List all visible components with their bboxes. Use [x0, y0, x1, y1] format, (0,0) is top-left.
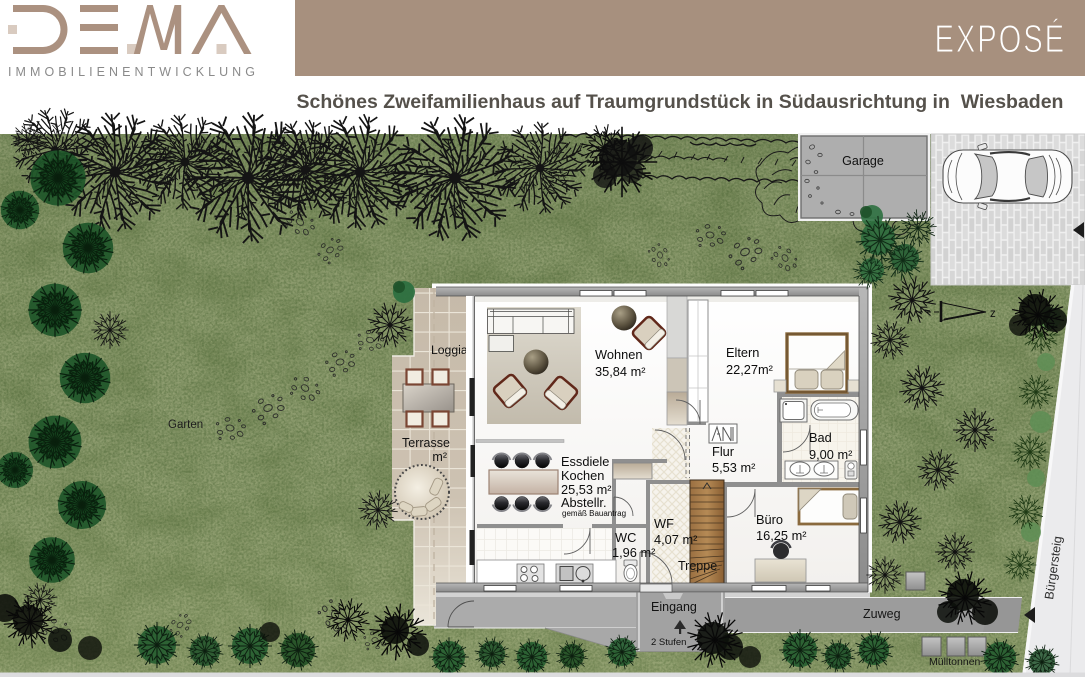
svg-text:gemäß Bauantrag: gemäß Bauantrag — [562, 509, 626, 518]
svg-text:Mülltonnen: Mülltonnen — [929, 656, 981, 668]
svg-text:Essdiele: Essdiele — [561, 454, 609, 469]
svg-text:Flur: Flur — [712, 444, 735, 459]
svg-text:Wohnen: Wohnen — [595, 347, 642, 362]
svg-text:Eingang: Eingang — [651, 600, 697, 614]
svg-text:Eltern: Eltern — [726, 345, 759, 360]
svg-text:1,96 m²: 1,96 m² — [612, 545, 656, 560]
svg-text:Garage: Garage — [842, 154, 884, 168]
svg-text:Kochen: Kochen — [561, 468, 604, 483]
svg-text:9,00 m²: 9,00 m² — [809, 447, 853, 462]
svg-text:Loggia.: Loggia. — [431, 343, 471, 357]
svg-text:WF: WF — [654, 516, 674, 531]
svg-text:EXPOSÉ: EXPOSÉ — [934, 17, 1066, 61]
svg-text:Büro: Büro — [756, 512, 783, 527]
svg-text:m²: m² — [432, 450, 447, 464]
svg-text:IMMOBILIENENTWICKLUNG: IMMOBILIENENTWICKLUNG — [8, 65, 259, 79]
svg-text:WC: WC — [615, 530, 636, 545]
svg-text:2 Stufen: 2 Stufen — [651, 637, 686, 648]
svg-text:35,84 m²: 35,84 m² — [595, 364, 646, 379]
svg-text:16,25 m²: 16,25 m² — [756, 528, 807, 543]
svg-text:22,27m²: 22,27m² — [726, 362, 774, 377]
svg-text:Bad: Bad — [809, 430, 832, 445]
svg-text:Garten: Garten — [168, 419, 203, 431]
svg-text:z: z — [990, 308, 996, 320]
svg-text:5,53 m²: 5,53 m² — [712, 460, 756, 475]
svg-text:Schönes Zweifamilienhaus auf T: Schönes Zweifamilienhaus auf Traumgrunds… — [297, 91, 1064, 113]
svg-text:Zuweg: Zuweg — [863, 607, 901, 621]
svg-text:Terrasse: Terrasse — [402, 436, 450, 450]
svg-text:4,07 m²: 4,07 m² — [654, 532, 698, 547]
svg-text:Abstellr.: Abstellr. — [561, 495, 607, 510]
svg-text:Treppe: Treppe — [678, 559, 717, 573]
